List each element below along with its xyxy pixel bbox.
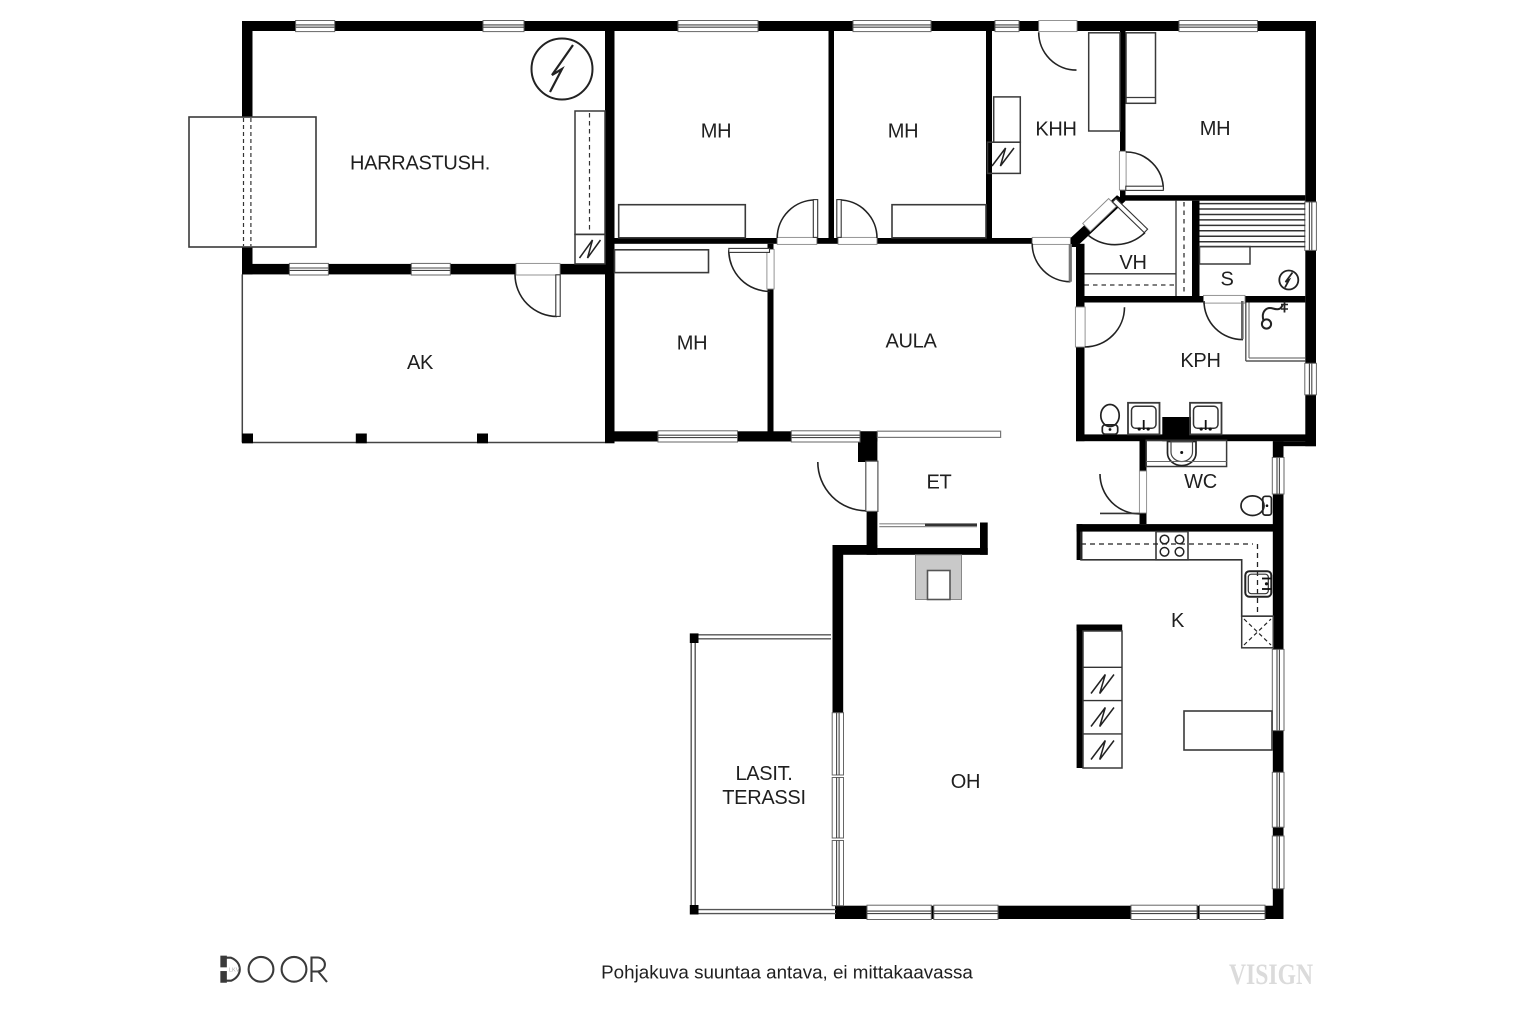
svg-text:OH: OH	[951, 771, 980, 793]
svg-text:KPH: KPH	[1180, 350, 1220, 372]
svg-text:MH: MH	[888, 121, 919, 143]
svg-text:WC: WC	[1184, 471, 1217, 493]
svg-text:K: K	[1171, 610, 1185, 632]
svg-text:KHH: KHH	[1035, 119, 1076, 141]
svg-text:Pohjakuva suuntaa antava, ei m: Pohjakuva suuntaa antava, ei mittakaavas…	[601, 962, 973, 983]
svg-text:ET: ET	[927, 472, 952, 494]
svg-text:S: S	[1220, 269, 1233, 291]
svg-text:LASIT.: LASIT.	[735, 763, 792, 785]
svg-text:TERASSI: TERASSI	[722, 787, 805, 809]
svg-text:VISIGN: VISIGN	[1229, 958, 1313, 991]
svg-text:MH: MH	[1200, 118, 1231, 140]
svg-text:LKV: LKV	[229, 968, 240, 974]
svg-text:MH: MH	[701, 121, 732, 143]
svg-text:MH: MH	[677, 333, 708, 355]
svg-text:AULA: AULA	[885, 331, 937, 353]
svg-text:VH: VH	[1119, 252, 1146, 274]
svg-text:HARRASTUSH.: HARRASTUSH.	[350, 153, 490, 175]
svg-text:AK: AK	[407, 352, 434, 374]
